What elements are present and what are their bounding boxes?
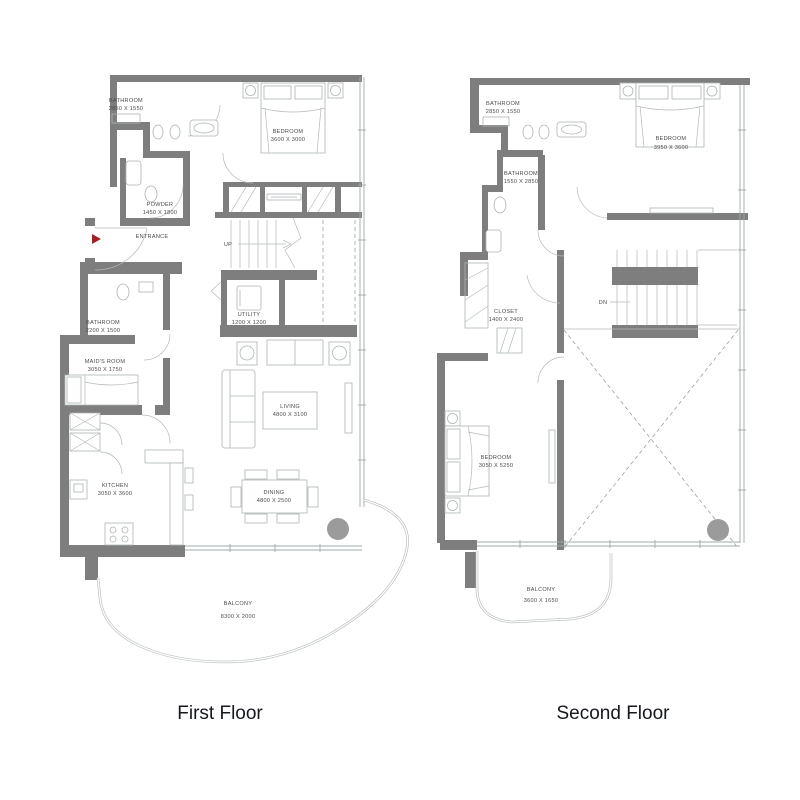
first-floor-title: First Floor (110, 703, 330, 725)
room-label-bedroom: BEDROOM (273, 129, 304, 135)
room-dims-living: 4800 X 3100 (273, 412, 307, 418)
second-floor-labels: BATHROOM 2850 X 1550 BEDROOM 3950 X 3600… (479, 101, 688, 604)
room-dims-dining: 4800 X 2500 (257, 498, 291, 504)
room-dims-bathroom-mid: 2200 X 1500 (86, 328, 120, 334)
room-dims-kitchen: 3050 X 3600 (98, 491, 132, 497)
second-floor-plan: BATHROOM 2850 X 1550 BEDROOM 3950 X 3600… (430, 70, 770, 670)
first-floor-plan: BATHROOM 2850 X 1550 BEDROOM 3600 X 3000… (55, 70, 425, 680)
first-floor-balcony-outline (98, 500, 408, 662)
second-floor-stairs (610, 250, 737, 325)
floorplan-page: BATHROOM 2850 X 1550 BEDROOM 3600 X 3000… (0, 0, 800, 800)
first-floor-column (327, 518, 349, 540)
room-label-bathroom-mid-2f: BATHROOM (504, 171, 538, 177)
first-floor-living-furniture (222, 340, 352, 448)
room-label-balcony-2f: BALCONY (527, 587, 556, 593)
first-floor-dining-set (231, 470, 318, 523)
room-label-closet: CLOSET (494, 309, 518, 315)
stairs-dn-label: DN (599, 300, 608, 306)
room-label-powder: POWDER (147, 202, 174, 208)
room-dims-bathroom-mid-2f: 1550 X 2850 (504, 179, 538, 185)
room-label-bathroom-mid: BATHROOM (86, 320, 120, 326)
room-dims-closet: 1400 X 2400 (489, 317, 523, 323)
room-dims-bathroom-top: 2850 X 1550 (109, 106, 143, 112)
room-label-bathroom-top: BATHROOM (109, 98, 143, 104)
room-dims-bedroom-top-2f: 3950 X 3600 (654, 145, 688, 151)
room-dims-utility: 1200 X 1200 (232, 320, 266, 326)
stairs-up-label: UP (224, 242, 232, 248)
room-label-bathroom-top-2f: BATHROOM (486, 101, 520, 107)
room-label-balcony: BALCONY (224, 601, 253, 607)
first-floor-utility (237, 286, 261, 310)
first-floor-kitchen (70, 413, 193, 545)
second-floor-column (707, 519, 729, 541)
entrance-arrow-icon (92, 234, 101, 244)
first-floor-maids-bed (65, 375, 138, 405)
second-floor-title: Second Floor (503, 703, 723, 725)
room-label-bedroom-top-2f: BEDROOM (656, 136, 687, 142)
room-label-dining: DINING (263, 490, 284, 496)
second-floor-closet-wardrobe (465, 263, 522, 353)
room-dims-balcony: 8300 X 2000 (221, 614, 255, 620)
first-floor-wardrobe (231, 187, 333, 212)
second-floor-bed-bottom (445, 411, 555, 513)
room-label-maids: MAID'S ROOM (85, 359, 126, 365)
room-dims-bedroom: 3600 X 3000 (271, 137, 305, 143)
room-label-utility: UTILITY (238, 312, 261, 318)
room-dims-bedroom-bottom-2f: 3050 X 5250 (479, 463, 513, 469)
double-height-void (564, 329, 740, 548)
room-label-living: LIVING (280, 404, 300, 410)
room-label-entrance: ENTRANCE (136, 234, 169, 240)
room-dims-balcony-2f: 3600 X 1650 (524, 598, 558, 604)
room-dims-maids: 3050 X 1750 (88, 367, 122, 373)
room-label-kitchen: KITCHEN (102, 483, 128, 489)
room-dims-bathroom-top-2f: 2850 X 1550 (486, 109, 520, 115)
room-dims-powder: 1450 X 1800 (143, 210, 177, 216)
room-label-bedroom-bottom-2f: BEDROOM (481, 455, 512, 461)
